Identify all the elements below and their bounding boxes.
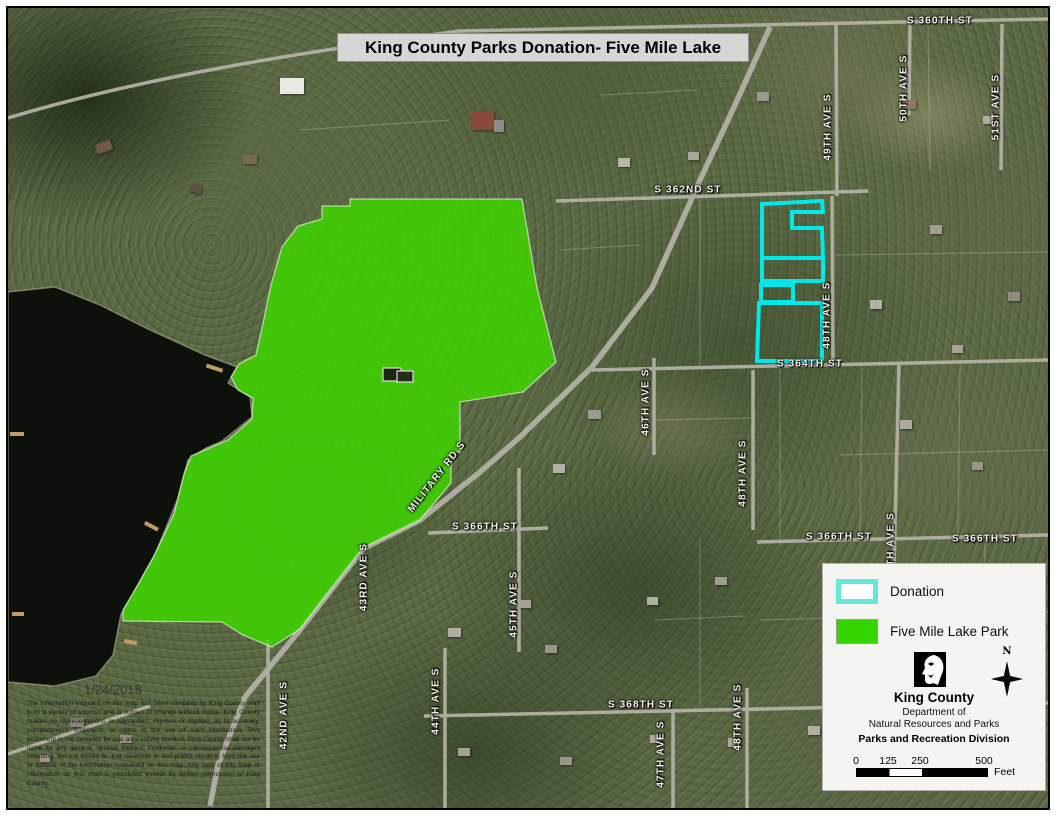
street-label: 49TH AVE S [823, 93, 834, 160]
street-label: 45TH AVE S [509, 570, 520, 637]
scale-tick: 125 [879, 755, 897, 767]
street-label: 43RD AVE S [359, 543, 370, 611]
street-label: 50TH AVE S [899, 54, 910, 121]
street-label: S 368TH ST [608, 700, 674, 711]
park-swatch [836, 619, 878, 644]
street-label: S 366TH ST [452, 522, 518, 533]
street-label: TH AVE S [886, 512, 897, 566]
king-county-logo [914, 652, 946, 687]
street-label: 48TH AVE S [738, 439, 749, 506]
map-date: 1/24/2018 [84, 682, 142, 697]
compass-star-icon [985, 657, 1029, 701]
donation-swatch [836, 579, 878, 604]
scale-unit: Feet [994, 766, 1015, 778]
street-label: S 366TH ST [952, 534, 1018, 545]
legend-item-park: Five Mile Lake Park [836, 619, 1009, 644]
street-label: 51ST AVE S [991, 74, 1002, 141]
disclaimer-text: The information included on this map has… [27, 700, 260, 789]
street-label: 44TH AVE S [431, 667, 442, 734]
street-label: 46TH AVE S [641, 368, 652, 435]
street-label: S 360TH ST [907, 16, 973, 27]
agency-dept-line2: Natural Resources and Parks [823, 719, 1045, 730]
scale-tick: 0 [853, 755, 859, 767]
map-canvas: S 360TH ST49TH AVE S50TH AVE S51ST AVE S… [6, 6, 1050, 810]
street-label: 47TH AVE S [656, 720, 667, 787]
legend-label: Donation [890, 584, 944, 599]
street-label: 48TH AVE S [733, 683, 744, 750]
scale-bar-graphic [856, 768, 988, 777]
scale-tick: 250 [911, 755, 929, 767]
street-label: 42ND AVE S [279, 681, 290, 749]
agency-division: Parks and Recreation Division [823, 733, 1045, 745]
agency-dept-line1: Department of [823, 707, 1045, 718]
legend-panel: Donation Five Mile Lake Park King County… [822, 563, 1046, 791]
legend-item-donation: Donation [836, 579, 944, 604]
map-frame: S 360TH ST49TH AVE S50TH AVE S51ST AVE S… [6, 6, 1050, 810]
street-label: S 366TH ST [806, 532, 872, 543]
street-label: S 362ND ST [654, 185, 721, 196]
legend-label: Five Mile Lake Park [890, 624, 1009, 639]
street-label: 48TH AVE S [822, 281, 833, 348]
scale-tick: 500 [975, 755, 993, 767]
map-title: King County Parks Donation- Five Mile La… [337, 33, 749, 62]
street-label: S 364TH ST [777, 359, 843, 370]
north-label: N [983, 646, 1031, 657]
north-arrow: N [983, 646, 1031, 706]
